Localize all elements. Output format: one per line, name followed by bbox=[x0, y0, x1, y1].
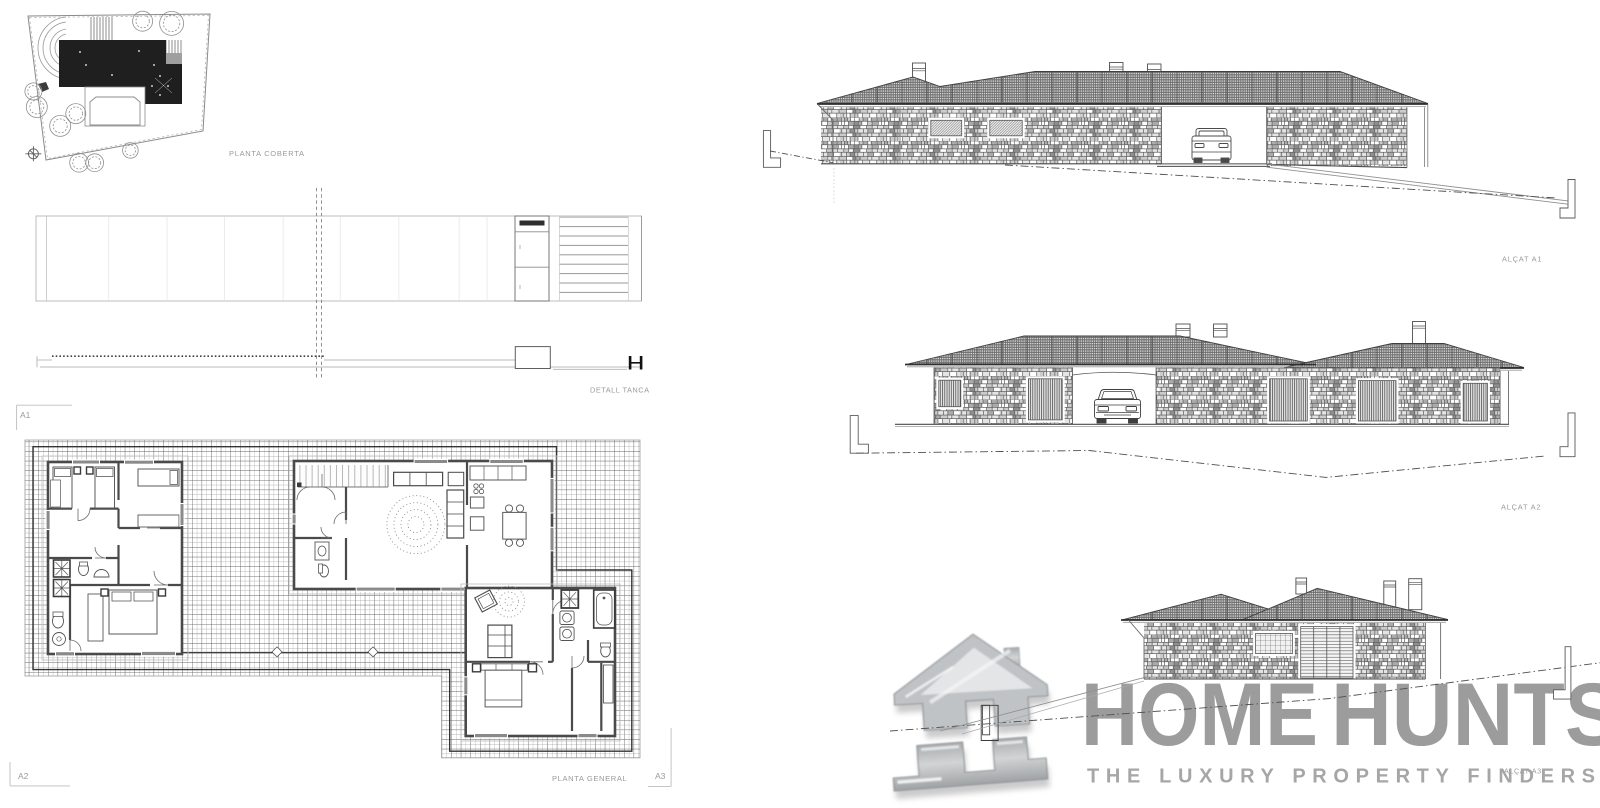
svg-text:ALÇAT A2: ALÇAT A2 bbox=[1501, 503, 1541, 512]
svg-text:A2: A2 bbox=[18, 771, 29, 781]
svg-text:A1: A1 bbox=[20, 410, 31, 420]
svg-text:HOME: HOME bbox=[1081, 664, 1318, 764]
svg-text:DETALL TANCA: DETALL TANCA bbox=[590, 386, 650, 395]
svg-text:PLANTA GENERAL: PLANTA GENERAL bbox=[552, 774, 627, 783]
svg-text:A3: A3 bbox=[655, 771, 666, 781]
svg-text:THE LUXURY PROPERTY FINDERS: THE LUXURY PROPERTY FINDERS bbox=[1087, 766, 1595, 788]
svg-text:PLANTA COBERTA: PLANTA COBERTA bbox=[229, 149, 305, 158]
svg-text:HUNTS: HUNTS bbox=[1331, 664, 1600, 764]
svg-text:ALÇAT A1: ALÇAT A1 bbox=[1502, 255, 1542, 264]
